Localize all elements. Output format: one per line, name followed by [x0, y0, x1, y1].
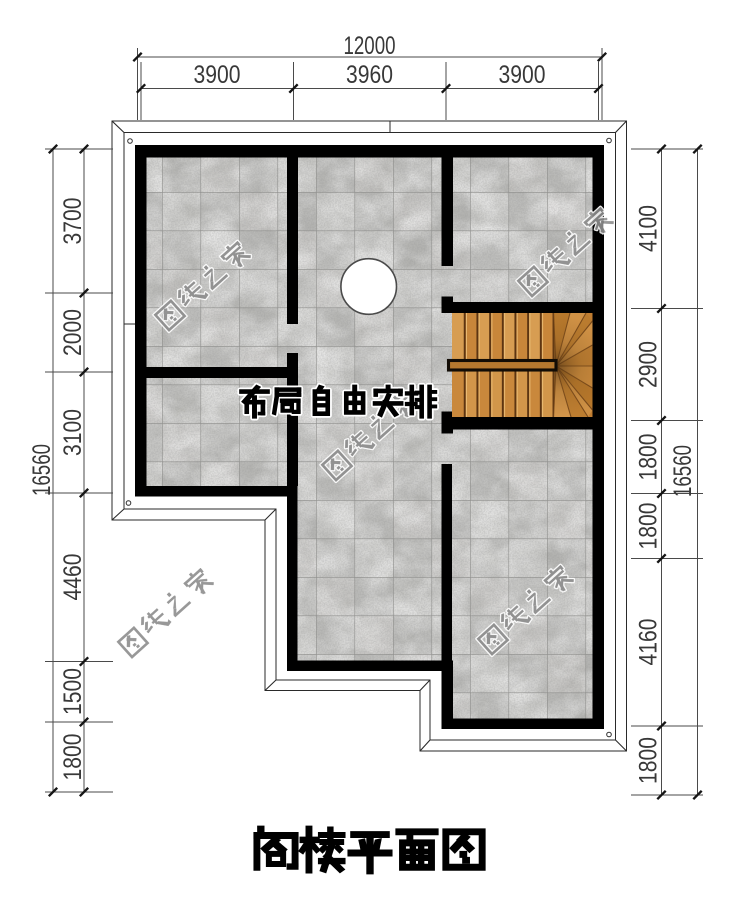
svg-text:4160: 4160: [635, 619, 663, 666]
svg-text:1800: 1800: [635, 503, 663, 550]
svg-text:1800: 1800: [59, 734, 87, 781]
svg-text:3900: 3900: [499, 61, 546, 89]
svg-text:3700: 3700: [59, 198, 87, 245]
svg-text:4100: 4100: [635, 205, 663, 252]
svg-text:12000: 12000: [344, 32, 396, 60]
svg-text:3100: 3100: [59, 409, 87, 456]
svg-text:2900: 2900: [635, 341, 663, 388]
svg-text:3960: 3960: [346, 61, 393, 89]
svg-text:4460: 4460: [59, 554, 87, 601]
svg-text:1500: 1500: [59, 668, 87, 715]
svg-text:1800: 1800: [635, 434, 663, 481]
svg-text:16560: 16560: [669, 445, 697, 497]
svg-text:16560: 16560: [28, 444, 56, 496]
svg-text:1800: 1800: [635, 737, 663, 784]
svg-text:2000: 2000: [59, 309, 87, 356]
svg-text:3900: 3900: [194, 61, 241, 89]
